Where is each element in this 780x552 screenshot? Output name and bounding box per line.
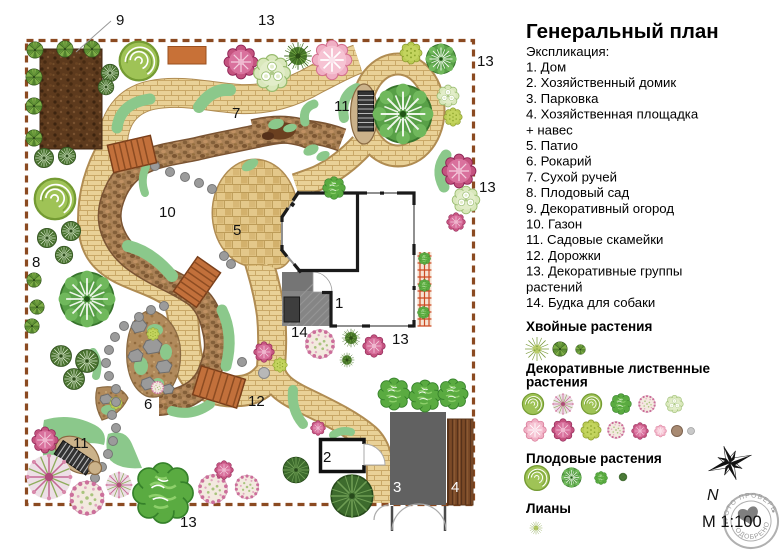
svg-text:Хвойные растения: Хвойные растения [526, 319, 652, 334]
svg-text:Генеральный план: Генеральный план [526, 20, 719, 43]
svg-text:13: 13 [180, 514, 197, 531]
svg-text:1. Дом: 1. Дом [526, 60, 566, 75]
svg-text:13: 13 [392, 331, 409, 348]
svg-text:3. Парковка: 3. Парковка [526, 91, 599, 106]
svg-text:5: 5 [233, 222, 241, 239]
svg-text:13. Декоративные группы: 13. Декоративные группы [526, 264, 682, 279]
svg-text:5. Патио: 5. Патио [526, 138, 578, 153]
svg-text:11. Садовые скамейки: 11. Садовые скамейки [526, 232, 663, 247]
svg-text:8: 8 [32, 254, 40, 271]
svg-text:1: 1 [335, 295, 343, 312]
svg-text:М 1:100: М 1:100 [702, 513, 762, 531]
svg-text:12. Дорожки: 12. Дорожки [526, 248, 601, 263]
svg-text:6: 6 [144, 396, 152, 413]
svg-text:8. Плодовый сад: 8. Плодовый сад [526, 185, 629, 200]
svg-text:14. Будка для собаки: 14. Будка для собаки [526, 295, 655, 310]
svg-text:6. Рокарий: 6. Рокарий [526, 154, 592, 169]
svg-text:9: 9 [116, 12, 124, 29]
svg-text:11: 11 [73, 435, 89, 452]
svg-text:9. Декоративный огород: 9. Декоративный огород [526, 201, 674, 216]
svg-text:2: 2 [323, 449, 331, 466]
svg-text:N: N [707, 487, 719, 504]
svg-text:10. Газон: 10. Газон [526, 217, 582, 232]
svg-text:7: 7 [232, 105, 240, 122]
svg-text:13: 13 [477, 53, 494, 70]
svg-text:12: 12 [248, 393, 265, 410]
svg-text:Лианы: Лианы [526, 501, 571, 516]
svg-text:2. Хозяйственный домик: 2. Хозяйственный домик [526, 75, 676, 90]
svg-text:Плодовые растения: Плодовые растения [526, 451, 662, 466]
svg-text:+ навес: + навес [526, 122, 573, 137]
svg-text:Экспликация:: Экспликация: [526, 44, 609, 59]
svg-text:7. Сухой ручей: 7. Сухой ручей [526, 169, 617, 184]
svg-text:14: 14 [291, 324, 308, 341]
svg-text:10: 10 [159, 204, 176, 221]
svg-text:3: 3 [393, 479, 401, 496]
svg-text:растений: растений [526, 279, 583, 294]
svg-text:4. Хозяйственная площадка: 4. Хозяйственная площадка [526, 107, 699, 122]
svg-text:13: 13 [258, 12, 275, 29]
svg-text:13: 13 [479, 179, 496, 196]
svg-text:4: 4 [451, 479, 459, 496]
svg-text:растения: растения [526, 375, 588, 390]
svg-text:11: 11 [334, 98, 350, 115]
